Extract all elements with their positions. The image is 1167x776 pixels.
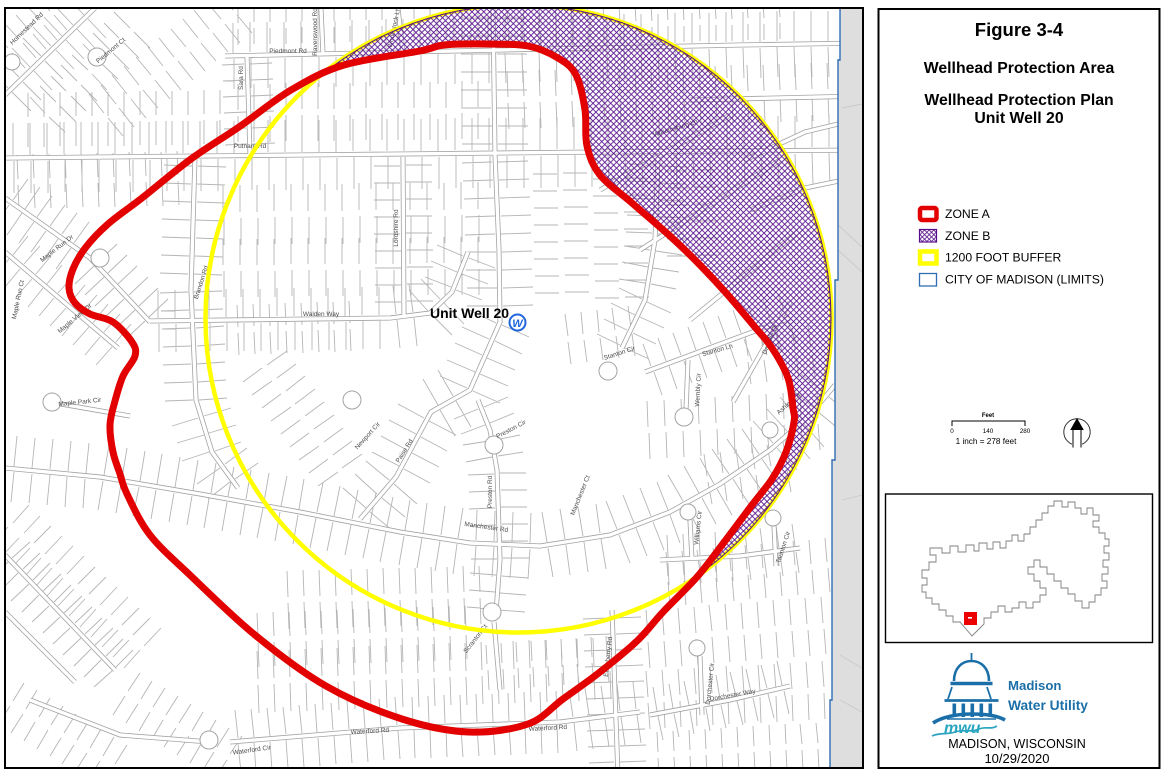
svg-text:mwu: mwu [944, 720, 981, 737]
svg-text:CITY OF MADISON (LIMITS): CITY OF MADISON (LIMITS) [945, 273, 1104, 287]
svg-text:MADISON, WISCONSIN: MADISON, WISCONSIN [948, 737, 1086, 751]
svg-text:Ravenswood Rd: Ravenswood Rd [312, 8, 319, 56]
svg-text:Figure 3-4: Figure 3-4 [975, 19, 1064, 40]
svg-text:Unit Well 20: Unit Well 20 [974, 110, 1063, 127]
svg-text:ZONE A: ZONE A [945, 207, 991, 221]
svg-text:ZONE B: ZONE B [945, 229, 990, 243]
svg-text:10/29/2020: 10/29/2020 [984, 751, 1049, 766]
svg-text:Feet: Feet [982, 413, 994, 419]
svg-text:0: 0 [950, 428, 954, 435]
svg-text:Wellhead Protection Plan: Wellhead Protection Plan [924, 92, 1113, 109]
svg-text:1200 FOOT BUFFER: 1200 FOOT BUFFER [945, 251, 1061, 265]
svg-text:Sara Rd: Sara Rd [238, 66, 245, 90]
svg-text:Madison: Madison [1008, 678, 1061, 693]
svg-text:Unit Well 20: Unit Well 20 [430, 305, 509, 321]
svg-text:280: 280 [1020, 428, 1031, 435]
svg-text:W: W [512, 318, 524, 330]
svg-text:Wellhead Protection Area: Wellhead Protection Area [924, 60, 1115, 77]
svg-text:Piedmont Rd: Piedmont Rd [269, 48, 307, 55]
svg-text:1 inch = 278 feet: 1 inch = 278 feet [956, 437, 1017, 446]
svg-text:Water Utility: Water Utility [1008, 698, 1088, 713]
svg-text:140: 140 [983, 428, 994, 435]
